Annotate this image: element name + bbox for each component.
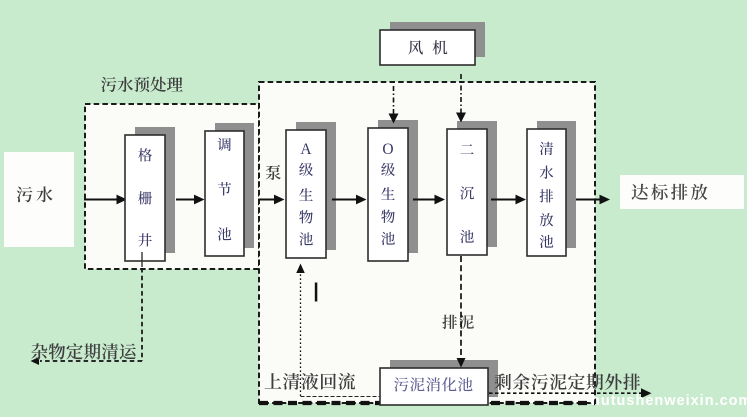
svg-text:A: A: [300, 141, 312, 158]
svg-text:hutushenweixin.com: hutushenweixin.com: [591, 393, 747, 409]
svg-text:O: O: [382, 141, 393, 158]
